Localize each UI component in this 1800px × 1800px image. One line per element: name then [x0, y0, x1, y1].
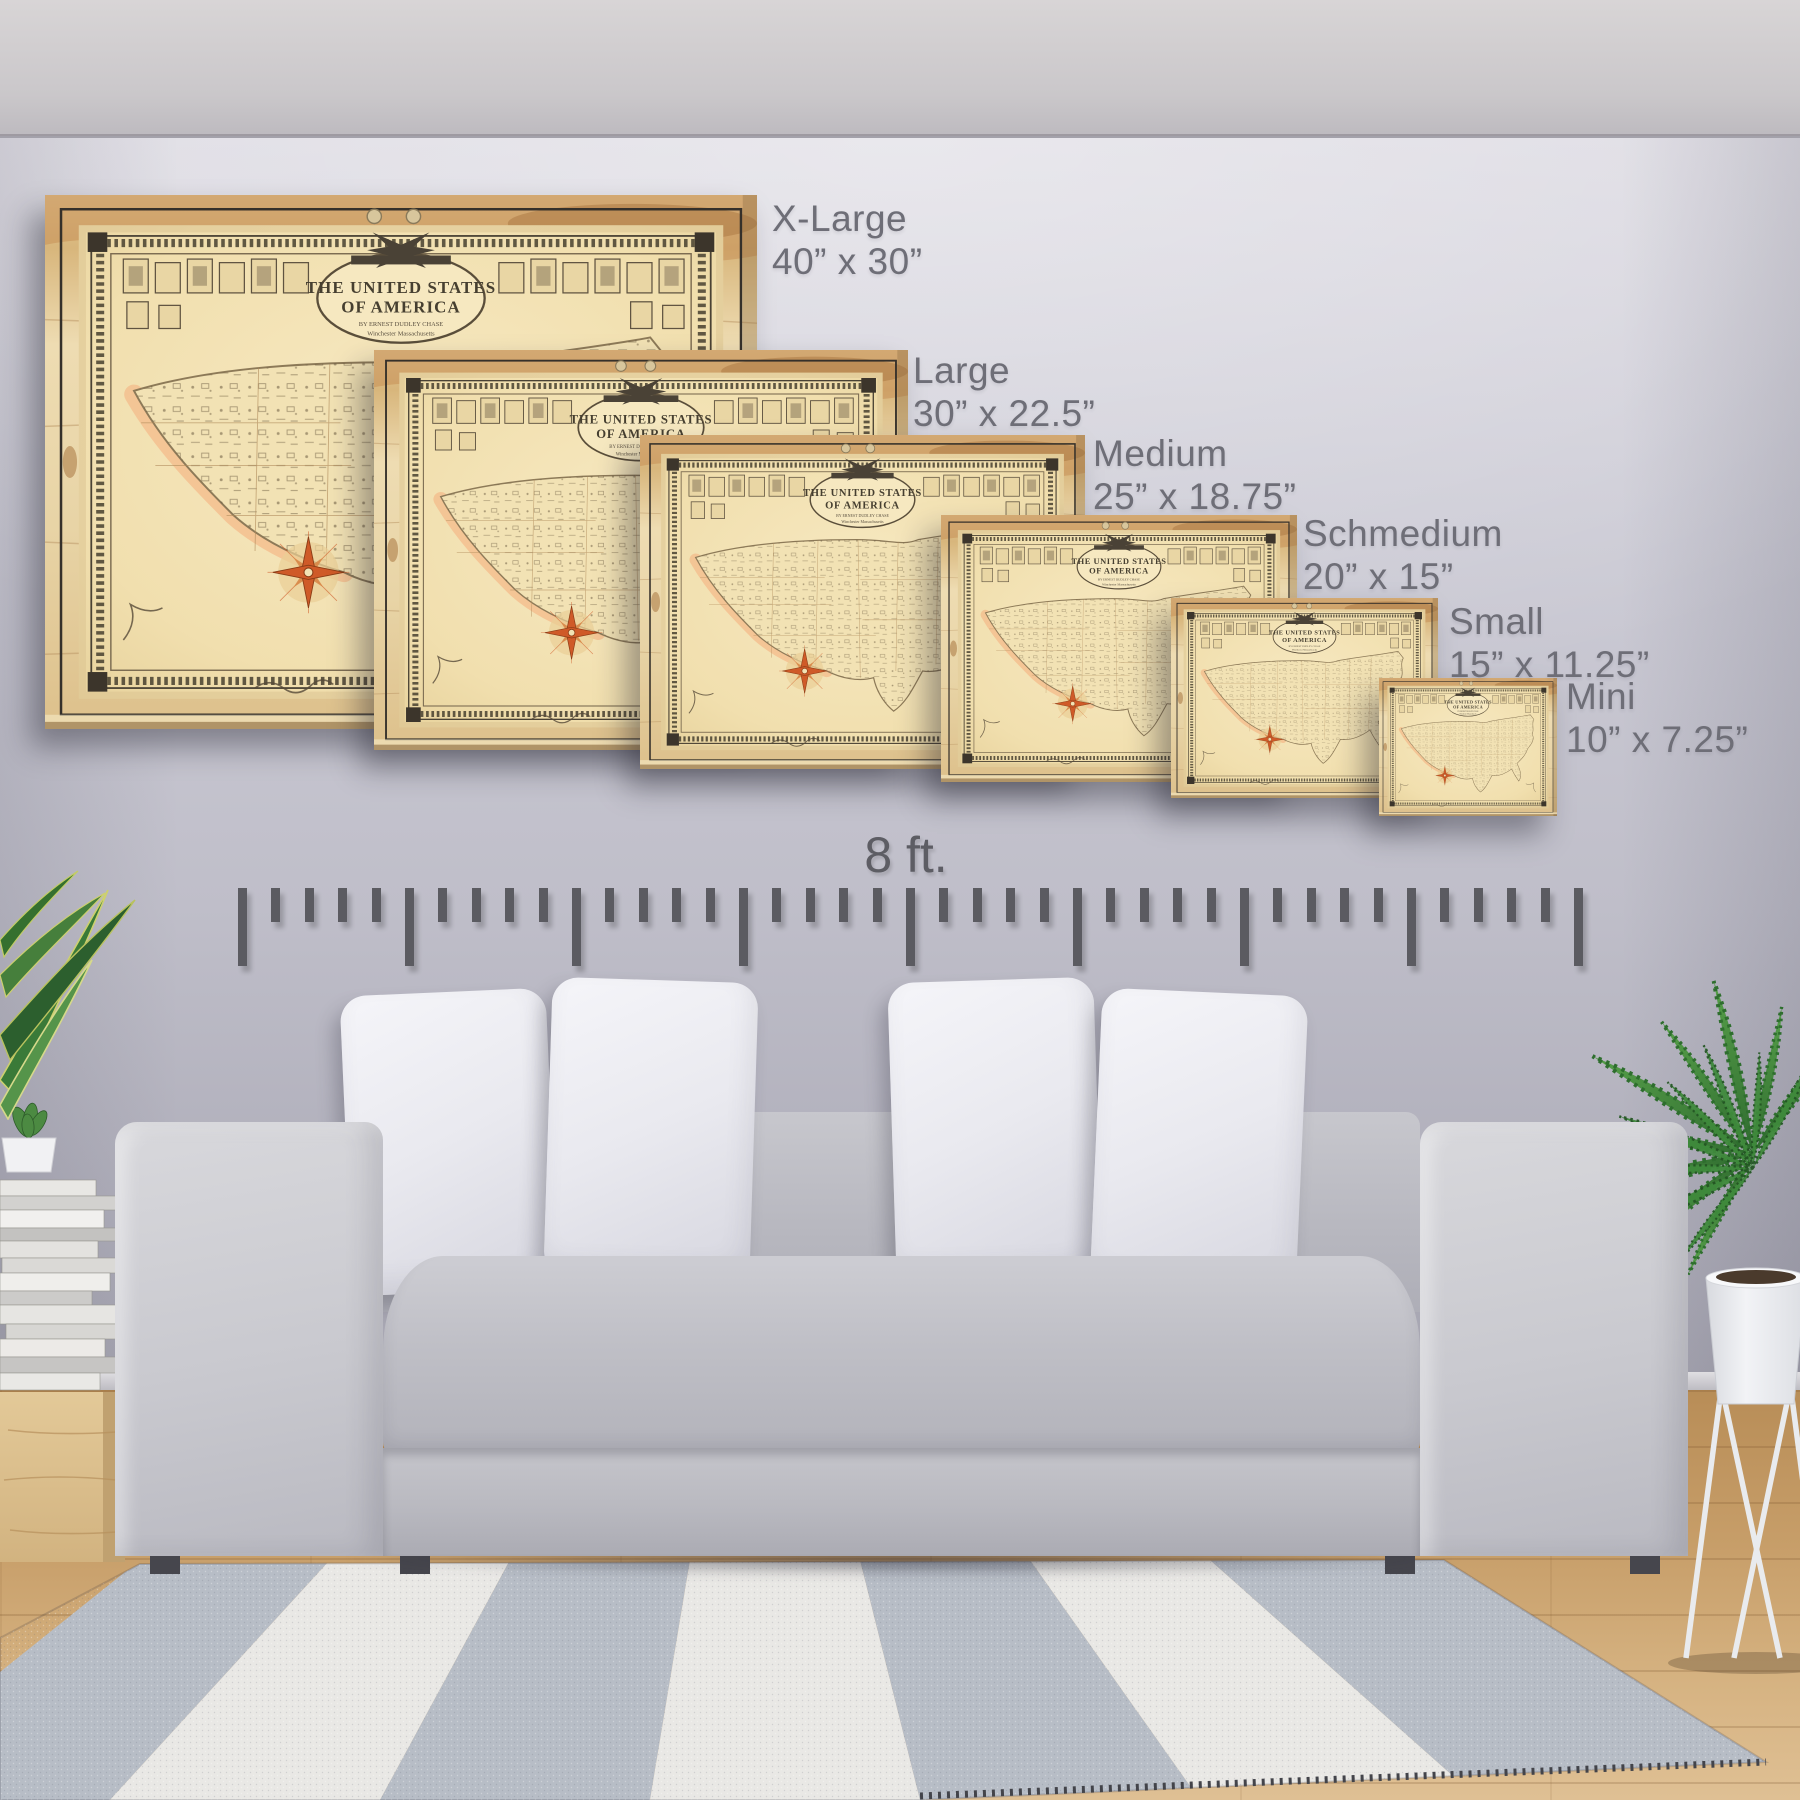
ruler-length-label: 8 ft. — [238, 826, 1574, 884]
size-name: Small — [1449, 601, 1650, 644]
throw-pillow — [887, 977, 1102, 1283]
throw-pillow — [543, 977, 758, 1283]
ruler-tick — [873, 888, 882, 922]
ruler-tick — [405, 888, 414, 966]
room-scene: THE UNITED STATES OF AMERICA BY ERNEST D… — [0, 0, 1800, 1800]
ruler-tick — [505, 888, 514, 922]
couch-base — [383, 1448, 1420, 1556]
size-label-large: Large 30” x 22.5” — [913, 350, 1095, 436]
size-label-small: Small 15” x 11.25” — [1449, 601, 1650, 687]
ruler-tick — [305, 888, 314, 922]
size-name: Large — [913, 350, 1095, 393]
ruler-tick — [1140, 888, 1149, 922]
ruler-tick — [372, 888, 381, 922]
ruler-tick — [271, 888, 280, 922]
couch-seat-cushion — [383, 1256, 1420, 1456]
ruler-tick — [1340, 888, 1349, 922]
ruler-tick — [939, 888, 948, 922]
ruler-tick — [806, 888, 815, 922]
ruler-tick — [572, 888, 581, 966]
ruler-tick — [1073, 888, 1082, 966]
size-label-medium: Medium 25” x 18.75” — [1093, 433, 1296, 519]
size-name: Medium — [1093, 433, 1296, 476]
ruler-tick — [1006, 888, 1015, 922]
couch-armrest-right — [1420, 1122, 1688, 1556]
ruler-tick — [1273, 888, 1282, 922]
size-label-schmedium: Schmedium 20” x 15” — [1303, 513, 1503, 599]
ruler-tick — [1574, 888, 1583, 966]
ruler-tick — [772, 888, 781, 922]
ruler-tick — [1307, 888, 1316, 922]
size-dimensions: 10” x 7.25” — [1566, 719, 1748, 762]
size-name: Schmedium — [1303, 513, 1503, 556]
ruler-tick — [1474, 888, 1483, 922]
ruler-tick — [839, 888, 848, 922]
ruler-ticks — [238, 888, 1578, 968]
ruler-tick — [338, 888, 347, 922]
ruler-tick — [1106, 888, 1115, 922]
ruler-tick — [672, 888, 681, 922]
ruler-tick — [1541, 888, 1550, 922]
size-label-xlarge: X-Large 40” x 30” — [772, 198, 923, 284]
map-panel-mini — [1379, 678, 1557, 816]
throw-pillow — [1090, 988, 1309, 1297]
ceiling — [0, 0, 1800, 136]
ruler-tick — [1374, 888, 1383, 922]
size-dimensions: 20” x 15” — [1303, 556, 1503, 599]
size-dimensions: 25” x 18.75” — [1093, 476, 1296, 519]
ruler-tick — [1040, 888, 1049, 922]
size-name: X-Large — [772, 198, 923, 241]
ruler-tick — [906, 888, 915, 966]
ruler-tick — [605, 888, 614, 922]
size-label-mini: Mini 10” x 7.25” — [1566, 676, 1748, 762]
ruler-tick — [472, 888, 481, 922]
ruler-tick — [1173, 888, 1182, 922]
wood-cube-stool — [0, 1392, 125, 1562]
couch-armrest-left — [115, 1122, 383, 1556]
size-dimensions: 30” x 22.5” — [913, 393, 1095, 436]
ruler-tick — [639, 888, 648, 922]
ruler-tick — [238, 888, 247, 966]
ruler-tick — [706, 888, 715, 922]
snake-plant — [0, 845, 235, 1120]
ruler-tick — [1407, 888, 1416, 966]
ruler-tick — [1207, 888, 1216, 922]
ruler-tick — [739, 888, 748, 966]
ruler-tick — [539, 888, 548, 922]
us-map-artwork — [1379, 678, 1557, 816]
size-name: Mini — [1566, 676, 1748, 719]
size-dimensions: 40” x 30” — [772, 241, 923, 284]
ruler-tick — [1440, 888, 1449, 922]
ruler-tick — [1240, 888, 1249, 966]
ruler-tick — [1507, 888, 1516, 922]
ruler-tick — [438, 888, 447, 922]
ruler-tick — [973, 888, 982, 922]
